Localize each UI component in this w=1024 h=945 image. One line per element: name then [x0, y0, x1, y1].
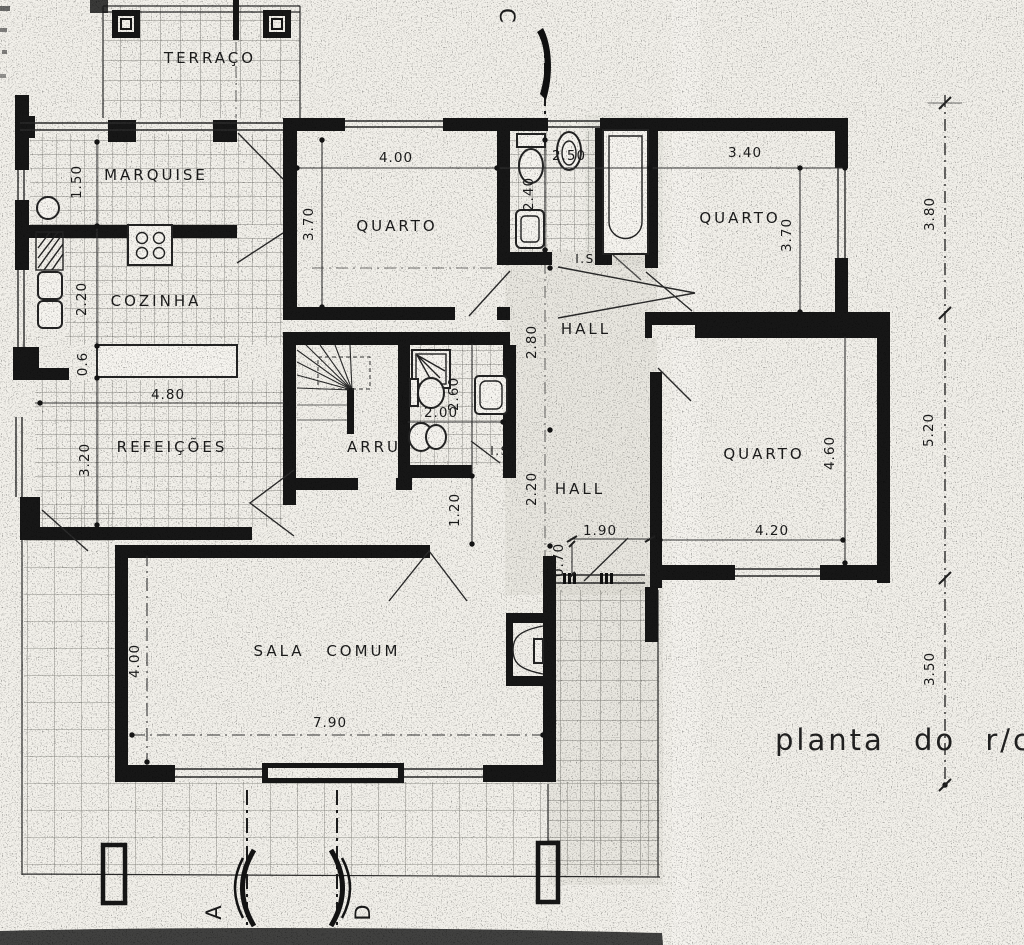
- scanned-floor-plan-page: TERRAÇO MARQUISE COZINHA REFEIÇÕES QUART…: [0, 0, 1024, 945]
- scan-artifacts: [0, 0, 1024, 945]
- floor-plan-drawing: TERRAÇO MARQUISE COZINHA REFEIÇÕES QUART…: [0, 0, 1024, 945]
